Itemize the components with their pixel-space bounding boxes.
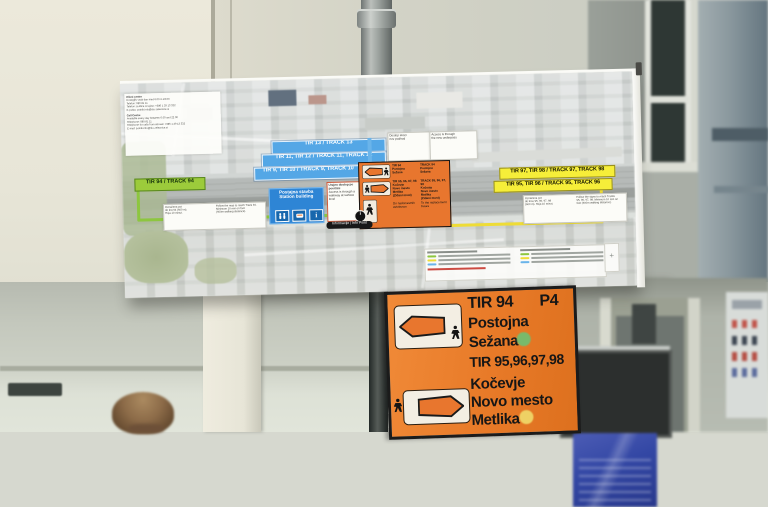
poster-pictogram-row-4 <box>732 368 762 377</box>
walking-note-en: Follow the signs to reach Tracks 95, 96,… <box>576 195 625 205</box>
right-arrow-icon <box>418 394 465 419</box>
legend-heading <box>427 250 477 253</box>
walking-note-en: Follow the map to reach Track 94. Minimu… <box>216 204 264 214</box>
legend-column-2 <box>520 247 604 276</box>
legend-heading <box>520 248 570 251</box>
pictogram-poster <box>726 292 768 418</box>
underpass-note-sl: Dostop skozi nov podhod <box>387 131 432 161</box>
walking-note-sl: Označena pot do tirov 95, 96, 97, 98 (60… <box>525 196 574 206</box>
bus-direction-pill-2 <box>362 181 390 196</box>
door-frame-strip-2 <box>688 298 700 432</box>
left-arrow-icon <box>399 312 446 341</box>
station-map-sign: Klicni center Dosegljiv vsak dan med 6.0… <box>120 71 637 297</box>
bus-sign-platform: P4 <box>539 292 558 311</box>
bus-dest-row2-en: TRACK 95, 96, 97, 98 Kočevje Novo mesto … <box>420 179 449 201</box>
legend-warning-line <box>428 267 486 270</box>
track9598-walking-note: Označena pot do tirov 95, 96, 97, 98 (60… <box>523 193 628 225</box>
wall-panel <box>632 304 656 344</box>
poster-pictogram-row-2 <box>732 336 762 345</box>
map-parking-lot <box>365 117 425 130</box>
map-building-solar-roof <box>268 90 296 107</box>
map-building-hall <box>416 92 462 109</box>
wall-column <box>203 283 261 432</box>
walking-note-sl: Označena pot do tira 94 (600 m). Hoja 10… <box>165 205 213 215</box>
arrow-plate-left <box>393 303 462 349</box>
pedestrian-icon <box>365 185 370 193</box>
legend-column <box>427 250 511 279</box>
bus-walk-sl: Do nadomestnih avtobusov <box>393 202 421 210</box>
track94-walking-note: Označena pot do tira 94 (600 m). Hoja 10… <box>163 201 267 231</box>
map-legend <box>424 244 607 281</box>
sign-mount-bracket <box>636 62 642 75</box>
pedestrian-icon <box>451 326 460 340</box>
poster-header <box>732 300 762 309</box>
wall-bracket <box>8 383 62 396</box>
station-building-box: Postajna stavba Station building i <box>269 187 325 224</box>
station-entrance <box>556 278 768 432</box>
bus-dest-row2-sl: TIR 95, 96, 97, 98 Kočevje Novo mesto Me… <box>392 180 420 198</box>
left-arrow-icon <box>365 167 383 176</box>
bus-sign-track-2: TIR 95,96,97,98 <box>469 351 564 370</box>
pedestrian-icon <box>393 399 402 413</box>
map-building-red-roof <box>308 95 326 104</box>
facade-pilaster <box>698 0 768 312</box>
sign-pole-cap <box>357 11 396 28</box>
facade-groove <box>712 128 768 141</box>
bus-sign-destinations-2: Kočevje Novo mesto Metlika <box>470 373 554 430</box>
ticket-icon <box>292 209 306 221</box>
station-building-label-en: Station building <box>270 194 323 200</box>
track-9-10-label: TIR 9, TIR 10 / TRACK 9, TRACK 10 <box>254 165 362 181</box>
bus-dest-row1-sl: TIR 94 Postojna Sežana <box>392 164 420 175</box>
right-arrow-icon <box>371 184 389 193</box>
bus-walk-en: To the replacement buses <box>421 201 449 209</box>
poster-pictogram-row <box>732 320 762 328</box>
map-green-patch <box>124 230 189 284</box>
info-icon: i <box>309 209 323 221</box>
glass-glare <box>573 433 657 507</box>
bus-dest-row1-en: TRACK 94 Postojna Sežana <box>420 163 448 174</box>
compass-icon: + <box>604 243 620 272</box>
underpass-note-en: Access is through the new underpass <box>429 130 478 160</box>
facade-groove-2 <box>714 186 768 193</box>
bus-direction-sign: TIR 94 P4 Postojna Sežana TIR 95,96,97,9… <box>384 285 581 440</box>
departures-screen <box>573 433 657 507</box>
call-centre-info-box: Klicni center Dosegljiv vsak dan med 6.0… <box>124 92 221 156</box>
poster-pictogram-row-3 <box>732 352 762 361</box>
track-94-label: TIR 94 / TRACK 94 <box>134 177 205 192</box>
window-mullion <box>648 96 690 103</box>
info-point-label: Informacije | Info Point <box>326 221 372 229</box>
wc-icon <box>275 210 289 222</box>
replacement-bus-box: TIR 94 Postojna Sežana TRACK 94 Postojna… <box>358 160 452 229</box>
bus-direction-pill-1 <box>362 164 390 179</box>
building-window <box>645 0 691 168</box>
wall-under-window <box>640 172 702 292</box>
pedestrian-icon <box>366 204 373 215</box>
bus-sign-track-1: TIR 94 <box>467 294 513 314</box>
arrow-plate-right <box>402 388 470 425</box>
pedestrian-icon <box>384 167 389 175</box>
map-green-patch-2 <box>194 257 237 284</box>
